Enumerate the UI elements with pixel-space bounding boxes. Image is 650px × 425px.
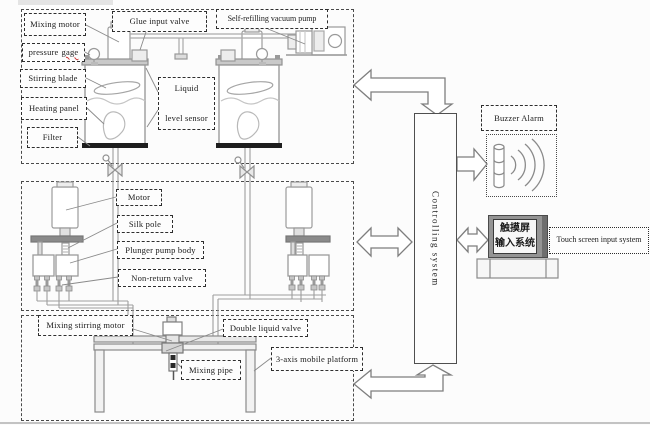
label-filter: Filter: [27, 127, 78, 148]
label-double-liquid-valve: Double liquid valve: [223, 319, 308, 337]
label-self-refilling-vacuum-pump: Self-refilling vacuum pump: [216, 9, 328, 29]
pump-assembly-1-drawing: [31, 182, 83, 291]
touch-screen-monitor-icon: 触摸屏 输入系统: [488, 215, 548, 258]
label-non-return-valve: Non-return valve: [118, 269, 206, 287]
pressure-gage-word-underlined: gage: [62, 48, 79, 57]
label-mixing-motor: Mixing motor: [24, 13, 86, 36]
label-silk-pole: Silk pole: [117, 215, 173, 233]
label-touch-screen-input-system: Touch screen input system: [549, 227, 649, 254]
buzzer-icon: [494, 139, 544, 191]
arrow-pumps-to-controller: [357, 228, 412, 256]
label-glue-input-valve: Glue input valve: [112, 11, 207, 32]
non-return-valve-fittings: [289, 276, 325, 290]
liquid-level-line2: level sensor: [165, 114, 208, 123]
touch-screen-display: 触摸屏 输入系统: [493, 219, 537, 254]
diagram-page: Mixing motor pressuregage Stirring blade…: [0, 0, 650, 425]
arrow-controller-to-buzzer: [457, 149, 487, 180]
mixing-tank-2-drawing: [216, 26, 282, 148]
touch-screen-cn-line2: 输入系统: [495, 237, 535, 252]
label-3-axis-mobile-platform: 3-axis mobile platform: [271, 347, 363, 371]
label-mixing-pipe: Mixing pipe: [181, 360, 241, 380]
controlling-system-box: Controlling system: [414, 113, 457, 364]
pressure-gage-word: pressure: [29, 48, 59, 57]
label-heating-panel: Heating panel: [21, 97, 87, 120]
label-mixing-stirring-motor: Mixing stirring motor: [38, 315, 133, 336]
mixing-tank-1-drawing: [82, 22, 148, 148]
pump-assembly-2-drawing: [286, 182, 330, 290]
label-motor: Motor: [116, 189, 162, 206]
arrow-tanks-to-controller: [354, 70, 452, 115]
label-stirring-blade: Stirring blade: [20, 69, 86, 88]
monitor-stand: [477, 259, 558, 278]
label-pressure-gage: pressuregage: [22, 43, 85, 62]
label-plunger-pump-body: Plunger pump body: [117, 241, 204, 259]
label-liquid-level-sensor: Liquid level sensor: [158, 77, 215, 130]
non-return-valve-fittings: [34, 276, 72, 291]
scan-edge-line: [0, 422, 650, 424]
label-buzzer-alarm: Buzzer Alarm: [481, 105, 557, 131]
touch-screen-cn-line1: 触摸屏: [500, 222, 530, 237]
arrow-platform-to-controller: [354, 365, 451, 398]
arrow-controller-to-touchscreen: [457, 228, 488, 252]
liquid-level-line1: Liquid: [175, 84, 199, 93]
